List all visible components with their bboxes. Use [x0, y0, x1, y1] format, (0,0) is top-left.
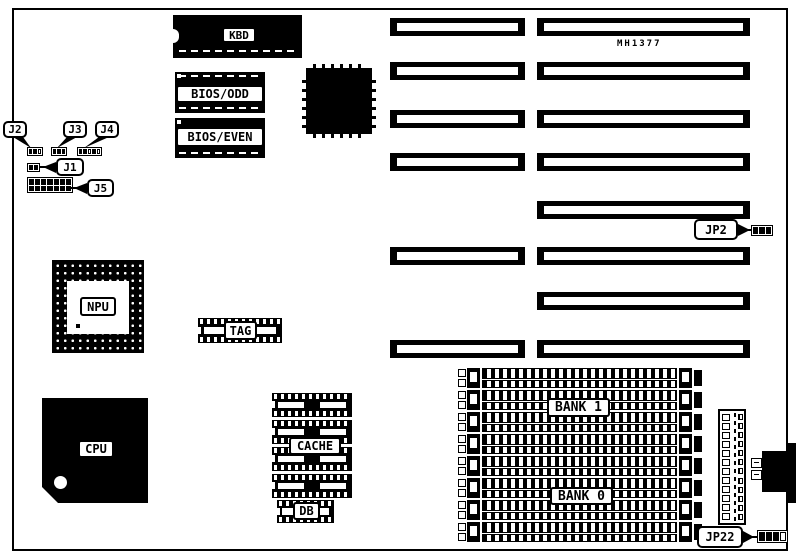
callout-tails [0, 0, 796, 559]
tail-j2 [13, 137, 31, 148]
tail-j3 [57, 137, 77, 148]
callout-jp22: JP22 [697, 526, 743, 548]
callout-j2: J2 [3, 121, 27, 138]
tail-j4 [84, 137, 109, 148]
callout-j1: J1 [56, 158, 84, 176]
callout-j4: J4 [95, 121, 119, 138]
callout-j3: J3 [63, 121, 87, 138]
callout-j5: J5 [87, 179, 114, 197]
callout-jp2: JP2 [694, 219, 738, 240]
motherboard-diagram: KBD BIOS/ODD BIOS/EVEN J2 J3 J4 J1 J5 NP… [0, 0, 796, 559]
